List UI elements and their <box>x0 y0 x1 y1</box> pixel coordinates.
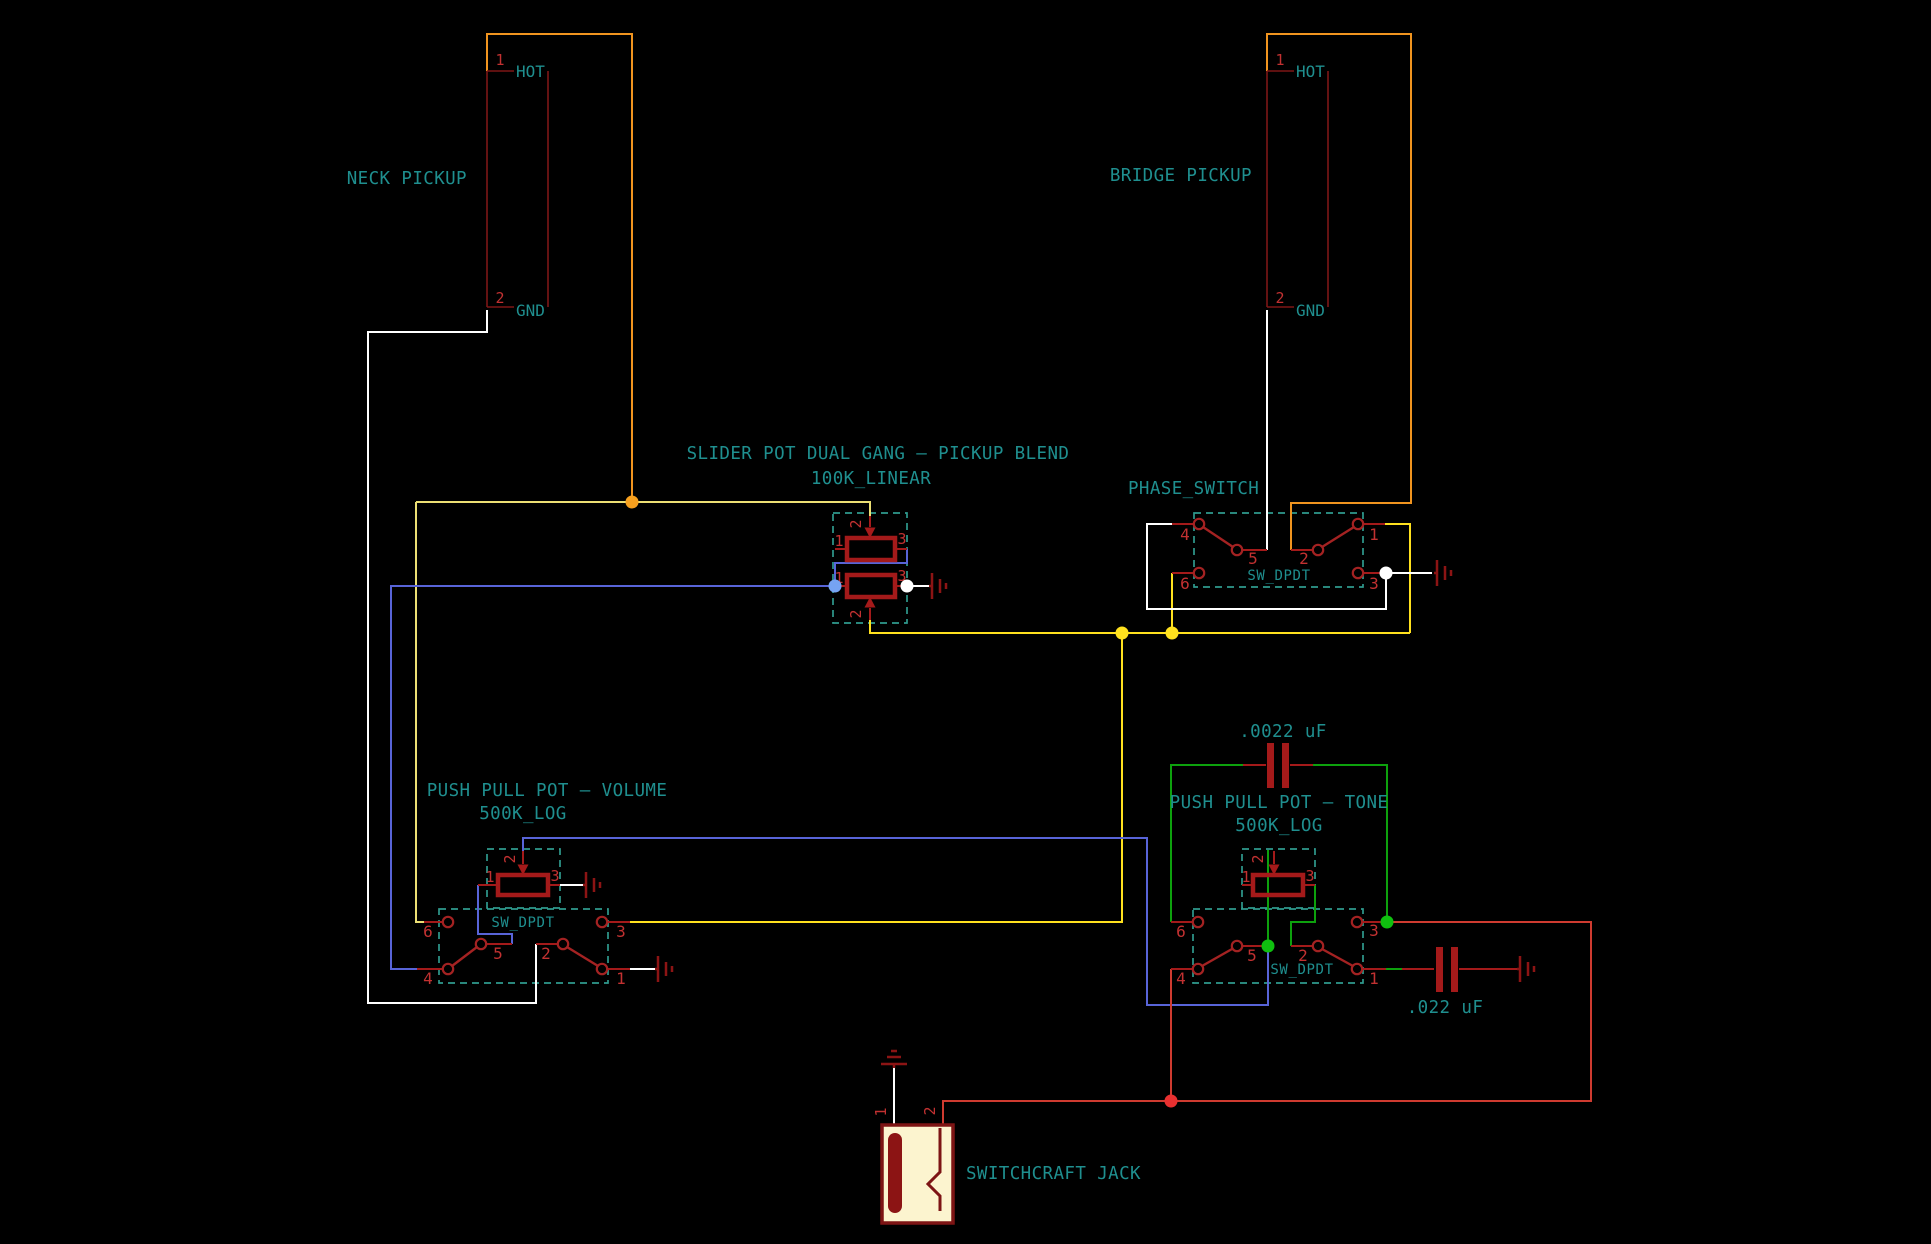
tone-pin5-number: 5 <box>1247 946 1257 965</box>
junction-bus-yellow-1[interactable] <box>1116 627 1129 640</box>
neck-pin2-number: 2 <box>495 289 504 307</box>
tone-pin6-number: 6 <box>1176 922 1186 941</box>
blend-gang1-pin2: 2 <box>847 519 865 528</box>
phase-pin1-number: 1 <box>1369 525 1379 544</box>
jack-label: SWITCHCRAFT JACK <box>966 1164 1141 1184</box>
phase-lever-right[interactable] <box>1322 527 1354 547</box>
phase-switch-label: PHASE_SWITCH <box>1128 479 1259 499</box>
junction-tone-wiper[interactable] <box>1262 940 1275 953</box>
bridge-pin2-number: 2 <box>1275 289 1284 307</box>
bridge-pickup-body[interactable] <box>1267 71 1328 307</box>
bridge-hot-pin-name: HOT <box>1296 62 1325 81</box>
phase-contact-1[interactable] <box>1353 519 1363 529</box>
phase-contact-3[interactable] <box>1353 568 1363 578</box>
tone-pot-symbol[interactable]: 1 3 2 6 5 2 3 4 1 SW_DPDT PUSH PULL POT … <box>1170 793 1389 988</box>
phase-pin5-number: 5 <box>1248 549 1258 568</box>
jack-pin2-number: 2 <box>921 1106 939 1115</box>
tone-cap-plate-right <box>1451 947 1458 992</box>
jack-gnd-symbol <box>881 1051 907 1068</box>
volume-pin4-number: 4 <box>423 969 433 988</box>
tone-cap-gnd-symbol <box>1517 956 1534 982</box>
blend-gang1-resistor[interactable] <box>847 538 895 560</box>
blend-gnd-symbol <box>929 573 946 599</box>
neck-to-volume-switch-wire[interactable] <box>416 502 424 922</box>
tone-pot-pin1: 1 <box>1241 868 1250 886</box>
tone-contact-4[interactable] <box>1193 964 1203 974</box>
volume-lever-left[interactable] <box>452 947 477 966</box>
phase-pin4-number: 4 <box>1180 525 1190 544</box>
volume-pot-value: 500K_LOG <box>479 804 567 824</box>
bus-to-volume-pin3-wire[interactable] <box>630 633 1122 922</box>
volume-lever-right[interactable] <box>567 947 598 966</box>
neck-pickup-body[interactable] <box>487 71 548 307</box>
blue-wires[interactable] <box>391 549 1268 1005</box>
junction-tone-pin3[interactable] <box>1381 916 1394 929</box>
junction-bus-yellow-2[interactable] <box>1166 627 1179 640</box>
tone-contact-5[interactable] <box>1232 941 1242 951</box>
phase-contact-2[interactable] <box>1313 545 1323 555</box>
phase-pin-stubs <box>1172 524 1386 573</box>
phase-pin2-number: 2 <box>1299 549 1309 568</box>
bridge-pickup-label: BRIDGE PICKUP <box>1110 166 1252 186</box>
blend-cap-right-wire[interactable] <box>1313 765 1387 922</box>
blend-cap-left-wire[interactable] <box>1171 765 1243 922</box>
neck-gnd-to-volume-pin2-wire[interactable] <box>368 310 536 1003</box>
blend-to-volume-pin4-wire[interactable] <box>391 586 835 969</box>
blend-gang1-pin1: 1 <box>834 532 843 550</box>
schematic-canvas: 1 2 HOT GND NECK PICKUP 1 2 HOT GND BRID… <box>0 0 1931 1244</box>
neck-gnd-pin-name: GND <box>516 301 545 320</box>
volume-pin1-number: 1 <box>616 969 626 988</box>
neck-pickup-symbol[interactable]: 1 2 HOT GND NECK PICKUP <box>347 51 548 320</box>
tone-cap-symbol[interactable]: .022 uF <box>1402 947 1517 1018</box>
tone-contact-6[interactable] <box>1193 917 1203 927</box>
volume-pot-resistor[interactable] <box>498 875 548 895</box>
junction-blend-gnd[interactable] <box>901 580 914 593</box>
volume-contact-2[interactable] <box>558 939 568 949</box>
phase-pin6-number: 6 <box>1180 574 1190 593</box>
volume-contact-1[interactable] <box>597 964 607 974</box>
blend-pot-title: SLIDER POT DUAL GANG – PICKUP BLEND <box>687 444 1070 464</box>
tone-contact-2[interactable] <box>1313 941 1323 951</box>
volume-contact-5[interactable] <box>476 939 486 949</box>
blend-wiper2-bus-wire[interactable] <box>870 620 1410 633</box>
blend-wiper1-wire[interactable] <box>416 502 870 516</box>
volume-pot-symbol[interactable]: 1 3 2 6 5 2 3 4 1 SW_DPDT PUSH PULL POT … <box>417 781 667 988</box>
blend-pot-symbol[interactable]: 1 3 2 1 3 2 SLIDER POT DUAL GANG – PICKU… <box>687 444 1070 620</box>
volume-contact-6[interactable] <box>443 917 453 927</box>
tone-pot-pin3: 3 <box>1305 867 1314 885</box>
tone-cap-plate-left <box>1436 947 1443 992</box>
bridge-hot-wire[interactable] <box>1267 34 1411 550</box>
phase-lever-left[interactable] <box>1203 527 1233 547</box>
phase-contact-4[interactable] <box>1194 519 1204 529</box>
jack-sleeve-lug <box>888 1133 902 1213</box>
tone-pot-resistor[interactable] <box>1253 875 1303 895</box>
tone-pin3-number: 3 <box>1369 921 1379 940</box>
volume-contact-4[interactable] <box>443 964 453 974</box>
tone-pot-pin2: 2 <box>1249 854 1267 863</box>
white-wires[interactable] <box>368 310 1432 1125</box>
tone-cap-value: .022 uF <box>1407 998 1484 1018</box>
blend-gang1-pin3: 3 <box>897 530 906 548</box>
volume-pot-gnd-symbol <box>583 872 600 898</box>
blend-cap-symbol[interactable]: .0022 uF <box>1239 722 1327 788</box>
neck-hot-wire[interactable] <box>487 34 632 502</box>
tone-pot-title: PUSH PULL POT – TONE <box>1170 793 1389 813</box>
volume-pot-pin1: 1 <box>485 868 494 886</box>
bridge-gnd-pin-name: GND <box>1296 301 1325 320</box>
bridge-pickup-symbol[interactable]: 1 2 HOT GND BRIDGE PICKUP <box>1110 51 1328 320</box>
bridge-pin1-number: 1 <box>1275 51 1284 69</box>
tone-pot-value: 500K_LOG <box>1235 816 1323 836</box>
blend-cap-value: .0022 uF <box>1239 722 1327 742</box>
volume-pin3-number: 3 <box>616 922 626 941</box>
junction-neck-hot[interactable] <box>626 496 639 509</box>
phase-pin3-number: 3 <box>1369 574 1379 593</box>
junction-blend-blue[interactable] <box>829 580 842 593</box>
neck-pickup-label: NECK PICKUP <box>347 169 467 189</box>
volume-pin2-number: 2 <box>541 944 551 963</box>
orange-wires[interactable] <box>487 34 1411 550</box>
phase-switch-part: SW_DPDT <box>1247 568 1310 584</box>
volume-pot-pin3: 3 <box>550 867 559 885</box>
neck-hot-pin-name: HOT <box>516 62 545 81</box>
tone-switch-part: SW_DPDT <box>1270 962 1333 978</box>
phase-gnd-symbol <box>1434 560 1451 586</box>
tone-contact-3[interactable] <box>1352 917 1362 927</box>
volume-pot-pin2: 2 <box>501 854 519 863</box>
blend-gang2-resistor[interactable] <box>847 575 895 597</box>
phase-switch-symbol[interactable]: 4 5 2 1 6 3 SW_DPDT PHASE_SWITCH <box>1128 479 1386 593</box>
volume-pin6-number: 6 <box>423 922 433 941</box>
volume-pin5-number: 5 <box>493 944 503 963</box>
junction-phase-gnd[interactable] <box>1380 567 1393 580</box>
blend-pot-value: 100K_LINEAR <box>811 469 931 489</box>
neck-pin1-number: 1 <box>495 51 504 69</box>
jack-symbol[interactable]: 1 2 SWITCHCRAFT JACK <box>872 1106 1141 1223</box>
tone-pin4-number: 4 <box>1176 969 1186 988</box>
pale-yellow-wires[interactable] <box>416 502 870 922</box>
blend-gang2-pin2: 2 <box>847 609 865 618</box>
tone-lever-left[interactable] <box>1202 949 1232 966</box>
volume-contact-3[interactable] <box>597 917 607 927</box>
tone-pin1-number: 1 <box>1369 969 1379 988</box>
jack-pin1-number: 1 <box>872 1107 890 1116</box>
volume-pot-title: PUSH PULL POT – VOLUME <box>427 781 668 801</box>
blend-cap-plate-left <box>1267 743 1274 788</box>
phase-contact-6[interactable] <box>1194 568 1204 578</box>
phase-contact-5[interactable] <box>1232 545 1242 555</box>
tone-contact-1[interactable] <box>1352 964 1362 974</box>
volume-switch-gnd-symbol <box>655 956 672 982</box>
junction-output-hot[interactable] <box>1165 1095 1178 1108</box>
blend-cap-plate-right <box>1282 743 1289 788</box>
volume-switch-part: SW_DPDT <box>491 915 554 931</box>
